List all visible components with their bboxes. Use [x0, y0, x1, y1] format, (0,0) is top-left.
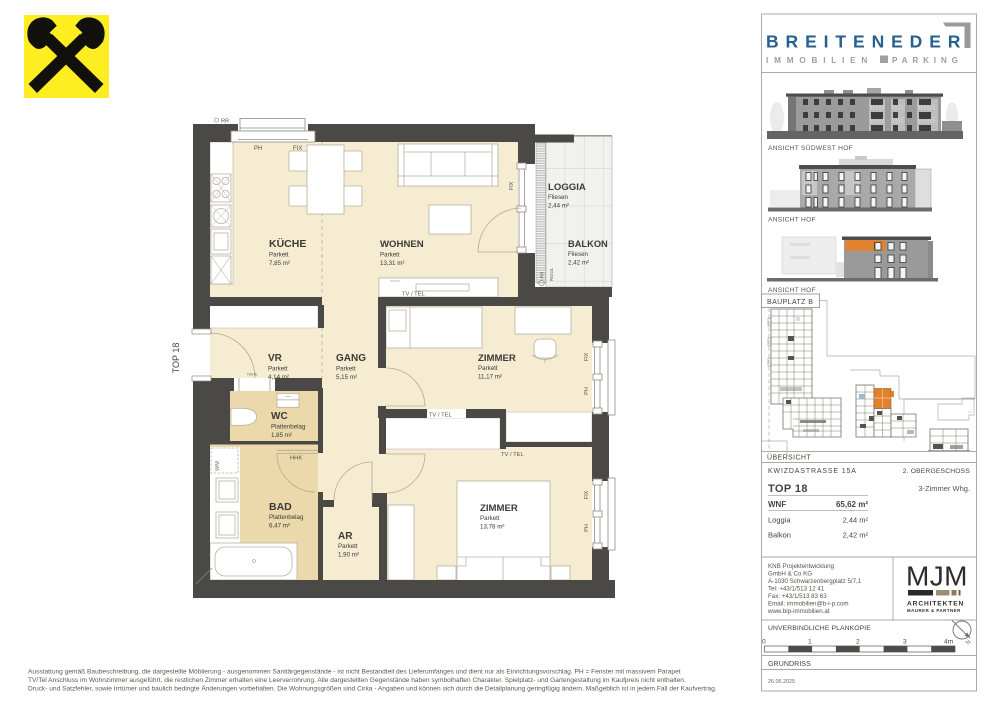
svg-text:6,47 m²: 6,47 m²	[269, 523, 290, 530]
svg-text:A-1030 Schwarzenbergplatz 5/7,: A-1030 Schwarzenbergplatz 5/7,1	[768, 578, 862, 585]
svg-text:PH: PH	[254, 146, 262, 152]
svg-text:BAUPLATZ B: BAUPLATZ B	[767, 299, 813, 306]
svg-text:ÜBERSICHT: ÜBERSICHT	[767, 454, 811, 462]
svg-text:IMMOBILIEN: IMMOBILIEN	[766, 56, 873, 65]
svg-text:FIX: FIX	[293, 146, 302, 152]
svg-text:UNVERBINDLICHE PLANKOPIE: UNVERBINDLICHE PLANKOPIE	[768, 625, 871, 632]
svg-text:TV/Tel Anschluss im Wohnzimmer: TV/Tel Anschluss im Wohnzimmer ausgeführ…	[28, 677, 686, 684]
svg-text:0: 0	[762, 639, 766, 646]
svg-text:WC: WC	[271, 411, 288, 422]
svg-text:Parkett: Parkett	[268, 366, 288, 373]
svg-text:Parkett: Parkett	[478, 365, 498, 372]
svg-text:TV / TEL: TV / TEL	[402, 292, 426, 298]
svg-text:Loggia: Loggia	[768, 516, 791, 525]
svg-text:Fliesen: Fliesen	[548, 194, 569, 201]
svg-text:2: 2	[856, 639, 860, 646]
svg-text:PARKING: PARKING	[892, 56, 963, 65]
svg-text:RR: RR	[540, 271, 545, 278]
svg-text:2,42 m²: 2,42 m²	[843, 531, 869, 540]
svg-text:TV / TEL: TV / TEL	[429, 413, 453, 419]
svg-text:TV / TEL: TV / TEL	[501, 452, 525, 458]
svg-text:78/HE: 78/HE	[246, 372, 257, 377]
svg-text:Fliesen: Fliesen	[568, 251, 589, 258]
svg-text:Parkett: Parkett	[336, 366, 356, 373]
svg-text:FIX: FIX	[584, 352, 590, 361]
svg-text:GANG: GANG	[336, 353, 366, 364]
svg-text:PH: PH	[584, 524, 590, 532]
svg-text:Ausstattung gemäß Baubeschreib: Ausstattung gemäß Baubeschreibung, die d…	[28, 669, 681, 676]
svg-text:MAURER & PARTNER: MAURER & PARTNER	[907, 608, 961, 613]
svg-text:MJM: MJM	[906, 561, 968, 592]
svg-text:Druck- und Satzfehler, sowie I: Druck- und Satzfehler, sowie Irrtümer un…	[28, 685, 717, 693]
svg-text:FIX: FIX	[584, 490, 590, 499]
svg-text:RIGOL: RIGOL	[549, 267, 554, 281]
svg-text:www.bip-immobilien.at: www.bip-immobilien.at	[767, 608, 830, 615]
svg-text:3: 3	[903, 639, 907, 646]
svg-text:5,15 m²: 5,15 m²	[336, 374, 357, 381]
svg-text:LOGGIA: LOGGIA	[548, 182, 586, 193]
svg-text:BALKON: BALKON	[568, 239, 608, 249]
svg-text:1,85 m²: 1,85 m²	[271, 432, 292, 439]
svg-text:ANSICHT HOF: ANSICHT HOF	[768, 217, 816, 224]
svg-text:1: 1	[808, 639, 812, 646]
svg-text:Fax: +43/1/513 83 63: Fax: +43/1/513 83 63	[768, 593, 827, 600]
svg-text:13,78 m²: 13,78 m²	[480, 524, 504, 531]
svg-text:VR: VR	[268, 353, 283, 364]
svg-text:FIX: FIX	[509, 181, 515, 190]
svg-text:ANSICHT HOF: ANSICHT HOF	[768, 287, 816, 294]
svg-text:26.06.2025: 26.06.2025	[768, 679, 795, 685]
svg-text:WOHNEN: WOHNEN	[380, 239, 424, 250]
svg-text:7,85 m²: 7,85 m²	[269, 260, 290, 267]
svg-text:AR: AR	[338, 531, 353, 542]
svg-text:ZIMMER: ZIMMER	[480, 503, 518, 514]
svg-text:HHK: HHK	[290, 456, 302, 462]
svg-text:BREITENEDER: BREITENEDER	[766, 32, 967, 52]
svg-text:WM: WM	[215, 461, 221, 471]
svg-text:Parkett: Parkett	[380, 252, 400, 259]
svg-text:TOP 18: TOP 18	[768, 483, 808, 495]
svg-text:2,44 m²: 2,44 m²	[548, 203, 569, 210]
svg-text:3-Zimmer Whg.: 3-Zimmer Whg.	[918, 484, 970, 493]
svg-text:Parkett: Parkett	[269, 252, 289, 259]
svg-text:PH: PH	[584, 387, 590, 395]
svg-text:2,44 m²: 2,44 m²	[843, 516, 869, 525]
svg-text:WNF: WNF	[768, 500, 786, 509]
svg-text:TOP 18: TOP 18	[171, 343, 181, 374]
svg-text:ANSICHT SÜDWEST HOF: ANSICHT SÜDWEST HOF	[768, 144, 853, 152]
svg-text:BAD: BAD	[269, 501, 292, 513]
svg-text:2. OBERGESCHOSS: 2. OBERGESCHOSS	[903, 468, 971, 475]
svg-text:GRUNDRISS: GRUNDRISS	[768, 661, 811, 668]
svg-text:ZIMMER: ZIMMER	[478, 353, 516, 364]
svg-text:Parkett: Parkett	[480, 515, 500, 522]
svg-text:11,17 m²: 11,17 m²	[478, 374, 502, 381]
svg-text:KWIZDASTRASSE 15A: KWIZDASTRASSE 15A	[768, 468, 857, 475]
svg-text:Parkett: Parkett	[338, 543, 358, 550]
svg-text:GmbH & Co KG: GmbH & Co KG	[768, 571, 812, 578]
svg-text:KÜCHE: KÜCHE	[269, 237, 306, 250]
svg-text:RR: RR	[221, 119, 229, 125]
svg-text:13,31 m²: 13,31 m²	[380, 260, 404, 267]
svg-text:KNB Projektentwicklung: KNB Projektentwicklung	[768, 563, 835, 570]
svg-text:Email: immobilien@b-i-p.com: Email: immobilien@b-i-p.com	[768, 601, 849, 608]
svg-text:Plattenbelag: Plattenbelag	[271, 424, 306, 431]
svg-text:1,90 m²: 1,90 m²	[338, 552, 359, 559]
svg-text:4,14 m²: 4,14 m²	[268, 374, 289, 381]
svg-text:4m: 4m	[944, 639, 954, 646]
svg-text:2,42 m²: 2,42 m²	[568, 260, 589, 267]
svg-text:Plattenbelag: Plattenbelag	[269, 514, 304, 521]
svg-text:Tel: +43/1/513 12 41: Tel: +43/1/513 12 41	[768, 586, 825, 593]
svg-text:Balkon: Balkon	[768, 531, 791, 540]
svg-text:65,62 m²: 65,62 m²	[836, 500, 868, 509]
svg-text:ARCHITEKTEN: ARCHITEKTEN	[907, 601, 964, 608]
